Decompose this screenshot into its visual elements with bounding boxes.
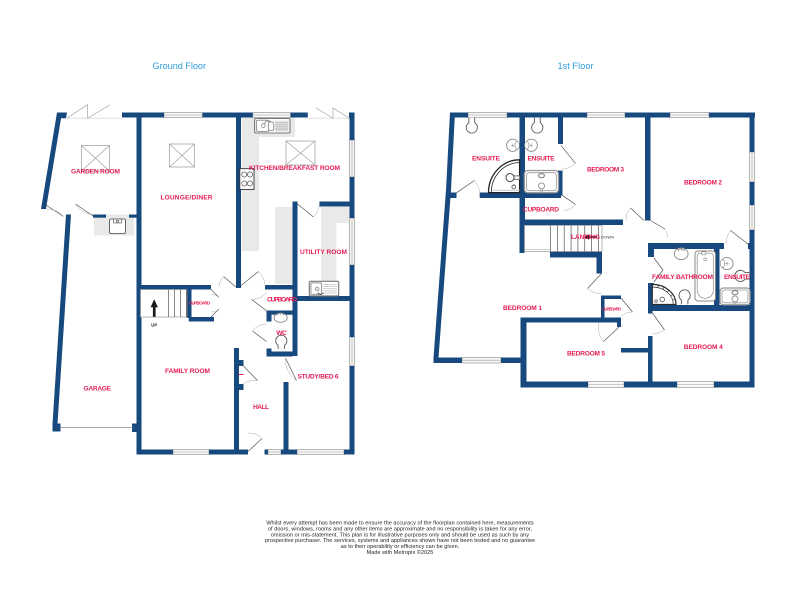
svg-text:1st Floor: 1st Floor <box>558 61 594 71</box>
svg-text:BEDROOM 1: BEDROOM 1 <box>503 305 542 312</box>
svg-text:ENSUITE: ENSUITE <box>472 155 501 162</box>
svg-text:KITCHEN/BREAKFAST ROOM: KITCHEN/BREAKFAST ROOM <box>249 165 341 172</box>
svg-text:FAMILY ROOM: FAMILY ROOM <box>165 368 211 375</box>
svg-text:CUPBOARD: CUPBOARD <box>523 206 559 213</box>
svg-text:LANDING: LANDING <box>571 234 600 241</box>
svg-text:DOWN: DOWN <box>601 236 614 240</box>
svg-text:HALL: HALL <box>253 404 269 411</box>
svg-text:ENSUITE: ENSUITE <box>724 274 751 281</box>
svg-text:CUPBOARD: CUPBOARD <box>602 306 621 311</box>
svg-text:UP: UP <box>151 323 157 328</box>
svg-text:GARDEN ROOM: GARDEN ROOM <box>71 169 121 176</box>
svg-text:BEDROOM 4: BEDROOM 4 <box>684 344 723 351</box>
svg-text:WC: WC <box>276 330 287 337</box>
svg-text:BEDROOM 5: BEDROOM 5 <box>567 351 605 358</box>
svg-text:UTILITY ROOM: UTILITY ROOM <box>300 249 348 256</box>
svg-text:Made with Metropix ©2025: Made with Metropix ©2025 <box>367 549 434 556</box>
svg-text:Ground Floor: Ground Floor <box>153 61 207 71</box>
svg-text:FAMILY BATHROOM: FAMILY BATHROOM <box>652 274 714 281</box>
svg-text:ENSUITE: ENSUITE <box>528 155 556 162</box>
svg-text:CUPBOARD: CUPBOARD <box>189 301 210 306</box>
svg-text:CUPBOARD: CUPBOARD <box>267 296 297 303</box>
svg-text:GARAGE: GARAGE <box>84 386 112 393</box>
svg-text:LOUNGE/DINER: LOUNGE/DINER <box>161 195 213 202</box>
svg-text:BEDROOM 3: BEDROOM 3 <box>587 166 624 173</box>
svg-text:STUDY/BED 6: STUDY/BED 6 <box>298 374 339 381</box>
svg-text:BEDROOM 2: BEDROOM 2 <box>684 179 722 186</box>
